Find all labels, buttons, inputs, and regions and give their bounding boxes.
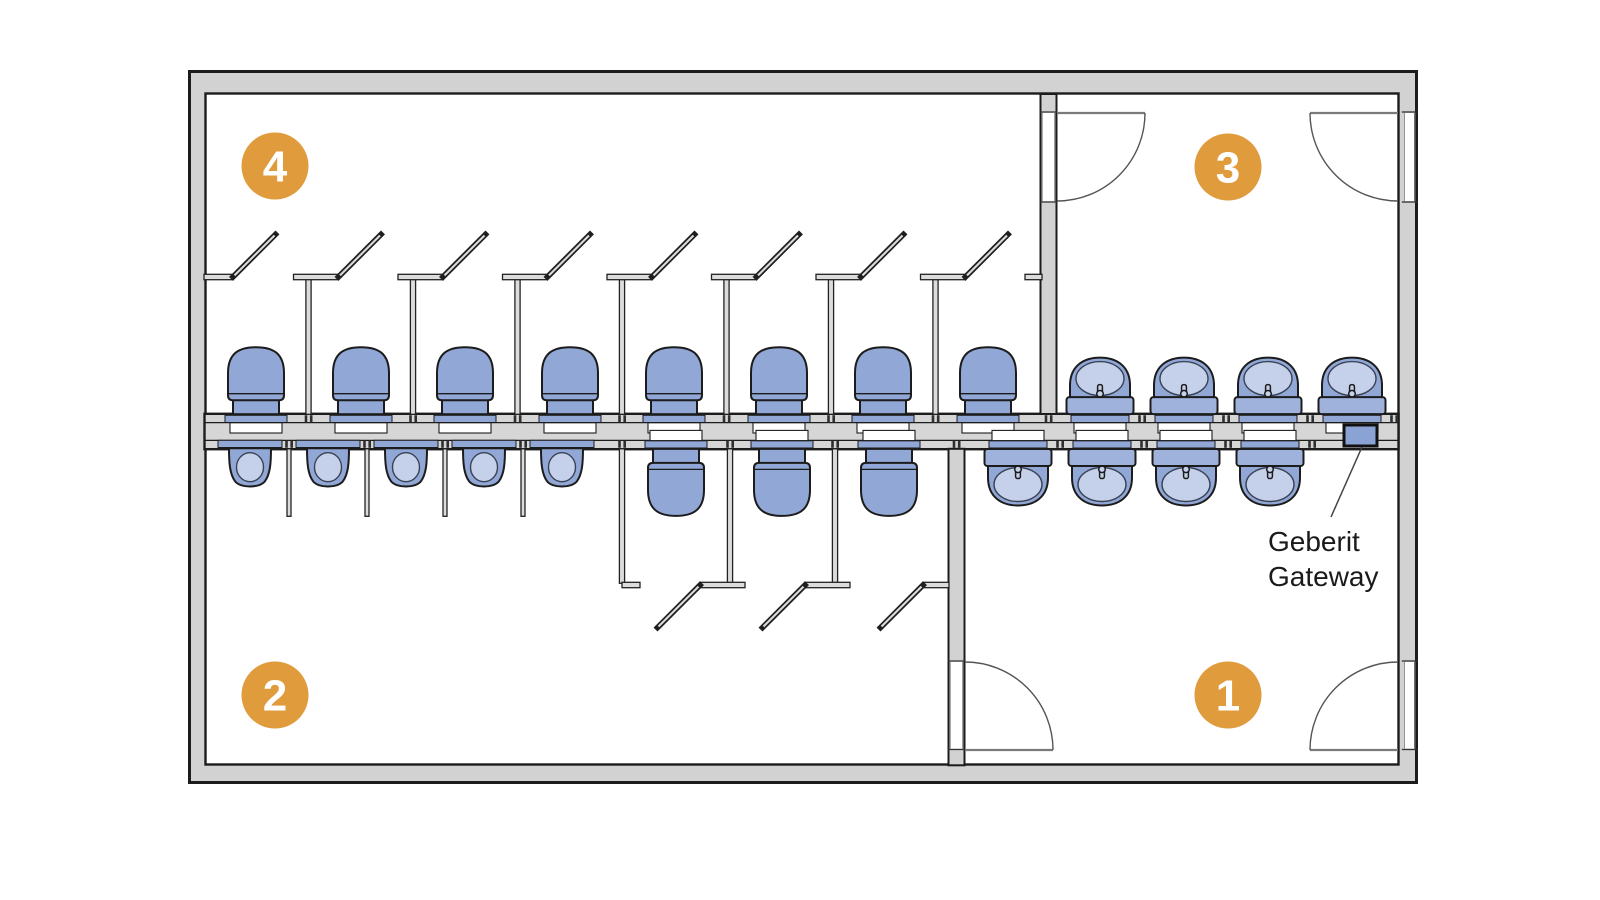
flush-plate <box>1241 441 1299 448</box>
door-opening <box>1042 113 1056 201</box>
urinal-privacy-screen <box>521 449 525 517</box>
pipe-joint-tick <box>726 441 729 448</box>
stall-front-wall <box>712 274 757 279</box>
flush-plate <box>1157 441 1215 448</box>
washbasin <box>1153 449 1220 506</box>
pipe-joint-tick <box>827 415 830 422</box>
concealed-cistern <box>1076 430 1128 440</box>
pipe-joint-tick <box>1306 415 1309 422</box>
pipe-joint-tick <box>731 441 734 448</box>
toilet <box>754 449 810 516</box>
concealed-cistern <box>1244 430 1296 440</box>
stall-front-wall <box>607 274 652 279</box>
washbasin <box>1069 449 1136 506</box>
flush-plate <box>530 440 594 447</box>
stall-front-wall <box>294 274 339 279</box>
zone-badge-number: 2 <box>263 672 287 721</box>
flush-plate <box>1155 415 1213 422</box>
stall-front-wall <box>622 582 640 587</box>
concealed-cistern <box>544 423 596 433</box>
door-opening <box>1404 662 1416 749</box>
washbasin <box>1067 358 1134 415</box>
stall-partition <box>724 276 729 414</box>
toilet <box>855 347 911 414</box>
pipe-joint-tick <box>441 441 444 448</box>
gateway-label-line1: Geberit <box>1268 526 1360 557</box>
geberit-gateway-device <box>1344 425 1377 446</box>
flush-plate <box>539 415 601 422</box>
washbasin <box>1237 449 1304 506</box>
washbasin <box>1151 358 1218 415</box>
pipe-joint-tick <box>618 415 621 422</box>
flush-plate <box>643 415 705 422</box>
pipe-joint-tick <box>1138 415 1141 422</box>
toilet <box>960 347 1016 414</box>
flush-plate <box>1323 415 1381 422</box>
stall-partition <box>727 449 732 584</box>
toilet <box>861 449 917 516</box>
floor-plan-svg: 1234 GeberitGateway <box>0 0 1600 900</box>
pipe-joint-tick <box>723 415 726 422</box>
concealed-cistern <box>230 423 282 433</box>
pipe-joint-tick <box>519 415 522 422</box>
toilet <box>228 347 284 414</box>
flush-plate <box>374 440 438 447</box>
pipe-joint-tick <box>305 415 308 422</box>
concealed-cistern <box>439 423 491 433</box>
flush-plate <box>989 441 1047 448</box>
stall-front-wall <box>204 274 233 279</box>
pipe-joint-tick <box>1061 441 1064 448</box>
pipe-joint-tick <box>1390 415 1393 422</box>
stall-front-wall <box>700 582 745 587</box>
stall-front-wall <box>503 274 548 279</box>
floor-plan-canvas: 1234 GeberitGateway <box>0 0 1600 900</box>
pipe-joint-tick <box>1145 441 1148 448</box>
pipe-joint-tick <box>1227 415 1230 422</box>
washbasin <box>985 449 1052 506</box>
flush-plate <box>434 415 496 422</box>
pipe-joint-tick <box>1143 415 1146 422</box>
toilet <box>751 347 807 414</box>
pipe-joint-tick <box>1229 441 1232 448</box>
flush-plate <box>852 415 914 422</box>
pipe-joint-tick <box>1224 441 1227 448</box>
pipe-joint-tick <box>514 415 517 422</box>
toilet <box>437 347 493 414</box>
zone-badge-4: 4 <box>242 133 309 200</box>
pipe-joint-tick <box>832 415 835 422</box>
washbasin <box>1319 358 1386 415</box>
pipe-joint-tick <box>524 441 527 448</box>
zone-badge-2: 2 <box>242 662 309 729</box>
pipe-joint-tick <box>1222 415 1225 422</box>
toilet <box>646 347 702 414</box>
stall-partition <box>832 449 837 584</box>
flush-plate <box>957 415 1019 422</box>
zone-badge-number: 4 <box>263 143 288 192</box>
pipe-joint-tick <box>831 441 834 448</box>
pipe-joint-tick <box>836 441 839 448</box>
flush-plate <box>218 440 282 447</box>
urinal-privacy-screen <box>443 449 447 517</box>
concealed-cistern <box>863 430 915 440</box>
concealed-cistern <box>756 430 808 440</box>
pipe-joint-tick <box>728 415 731 422</box>
pipe-joint-tick <box>1045 415 1048 422</box>
zone-badge-number: 1 <box>1216 672 1240 721</box>
pipe-joint-tick <box>937 415 940 422</box>
pipe-joint-tick <box>363 441 366 448</box>
urinal <box>307 448 349 486</box>
toilet <box>542 347 598 414</box>
toilet <box>648 449 704 516</box>
stall-partition <box>410 276 415 414</box>
pipe-joint-tick <box>932 415 935 422</box>
urinal <box>385 448 427 486</box>
stall-front-wall <box>1025 274 1042 279</box>
pipe-joint-tick <box>519 441 522 448</box>
pipe-joint-tick <box>958 441 961 448</box>
stall-front-wall <box>921 274 966 279</box>
pipe-joint-tick <box>1313 441 1316 448</box>
stall-partition <box>933 276 938 414</box>
pipe-joint-tick <box>623 415 626 422</box>
pipe-joint-tick <box>623 441 626 448</box>
urinal-privacy-screen <box>365 449 369 517</box>
stall-partition <box>619 449 624 584</box>
concealed-cistern <box>992 430 1044 440</box>
stall-front-wall <box>398 274 443 279</box>
flush-plate <box>225 415 287 422</box>
zone-badge-1: 1 <box>1195 662 1262 729</box>
flush-plate <box>751 441 813 448</box>
toilet <box>333 347 389 414</box>
stall-partition <box>515 276 520 414</box>
flush-plate <box>748 415 810 422</box>
flush-plate <box>1071 415 1129 422</box>
urinal <box>229 448 271 486</box>
pipe-joint-tick <box>1311 415 1314 422</box>
pipe-joint-tick <box>290 441 293 448</box>
flush-plate <box>330 415 392 422</box>
pipe-joint-tick <box>1308 441 1311 448</box>
stall-front-wall <box>923 582 949 587</box>
concealed-cistern <box>1160 430 1212 440</box>
concealed-cistern <box>650 430 702 440</box>
stall-front-wall <box>805 582 850 587</box>
gateway-label-line2: Gateway <box>1268 561 1379 592</box>
stall-front-wall <box>816 274 861 279</box>
pipe-joint-tick <box>1395 415 1398 422</box>
pipe-joint-tick <box>953 441 956 448</box>
pipe-joint-tick <box>368 441 371 448</box>
urinal <box>463 448 505 486</box>
pipe-joint-tick <box>414 415 417 422</box>
stall-partition <box>828 276 833 414</box>
flush-plate <box>296 440 360 447</box>
zone-badge-number: 3 <box>1216 144 1240 193</box>
flush-plate <box>1239 415 1297 422</box>
stall-partition <box>306 276 311 414</box>
urinal <box>541 448 583 486</box>
pipe-joint-tick <box>618 441 621 448</box>
pipe-joint-tick <box>1140 441 1143 448</box>
pipe-joint-tick <box>285 441 288 448</box>
pipe-joint-tick <box>1056 441 1059 448</box>
pipe-joint-tick <box>310 415 313 422</box>
pipe-joint-tick <box>446 441 449 448</box>
zone-badge-3: 3 <box>1195 134 1262 201</box>
flush-plate <box>645 441 707 448</box>
washbasin <box>1235 358 1302 415</box>
flush-plate <box>452 440 516 447</box>
door-opening <box>1404 113 1416 201</box>
concealed-cistern <box>335 423 387 433</box>
pipe-joint-tick <box>1050 415 1053 422</box>
stall-partition <box>619 276 624 414</box>
door-opening <box>950 662 964 749</box>
flush-plate <box>1073 441 1131 448</box>
urinal-privacy-screen <box>287 449 291 517</box>
flush-plate <box>858 441 920 448</box>
pipe-joint-tick <box>409 415 412 422</box>
